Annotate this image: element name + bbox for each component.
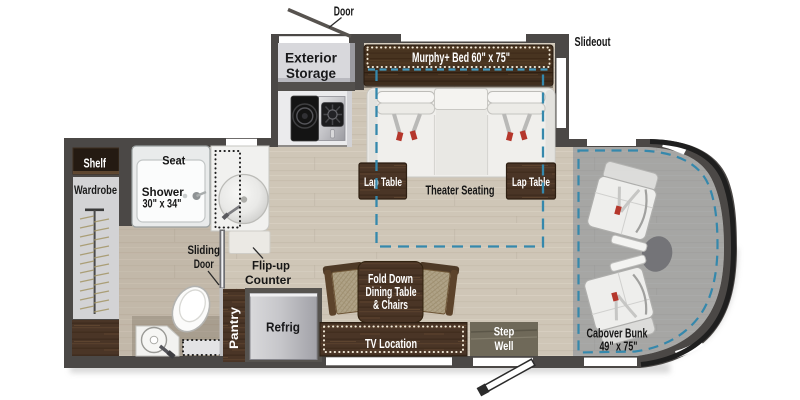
- svg-text:Fold Down: Fold Down: [368, 272, 413, 286]
- svg-text:Dining Table: Dining Table: [366, 285, 417, 299]
- svg-text:Exterior: Exterior: [285, 51, 338, 66]
- svg-text:Refrig: Refrig: [266, 321, 300, 335]
- svg-text:Murphy+ Bed 60" x 75": Murphy+ Bed 60" x 75": [412, 50, 510, 65]
- svg-text:TV Location: TV Location: [365, 337, 417, 351]
- svg-text:Pantry: Pantry: [227, 307, 241, 349]
- svg-text:Counter: Counter: [245, 273, 291, 287]
- svg-text:Door: Door: [334, 4, 354, 19]
- svg-text:Flip-up: Flip-up: [252, 259, 290, 273]
- svg-text:Theater Seating: Theater Seating: [426, 184, 495, 198]
- svg-text:Seat: Seat: [162, 154, 185, 168]
- svg-text:Lap Table: Lap Table: [512, 175, 550, 189]
- svg-text:Well: Well: [495, 339, 514, 353]
- svg-text:Lap Table: Lap Table: [364, 175, 402, 189]
- svg-text:Cabover Bunk: Cabover Bunk: [587, 327, 648, 341]
- svg-text:Shelf: Shelf: [83, 157, 106, 171]
- svg-text:Door: Door: [194, 257, 214, 271]
- svg-text:49" x 75": 49" x 75": [600, 340, 638, 354]
- svg-text:Sliding: Sliding: [187, 243, 220, 257]
- svg-text:Storage: Storage: [286, 66, 336, 81]
- svg-text:Wardrobe: Wardrobe: [74, 185, 117, 197]
- svg-text:& Chairs: & Chairs: [373, 298, 408, 312]
- svg-text:Slideout: Slideout: [575, 34, 611, 49]
- svg-text:Step: Step: [494, 325, 515, 339]
- svg-text:30" x 34": 30" x 34": [143, 197, 182, 211]
